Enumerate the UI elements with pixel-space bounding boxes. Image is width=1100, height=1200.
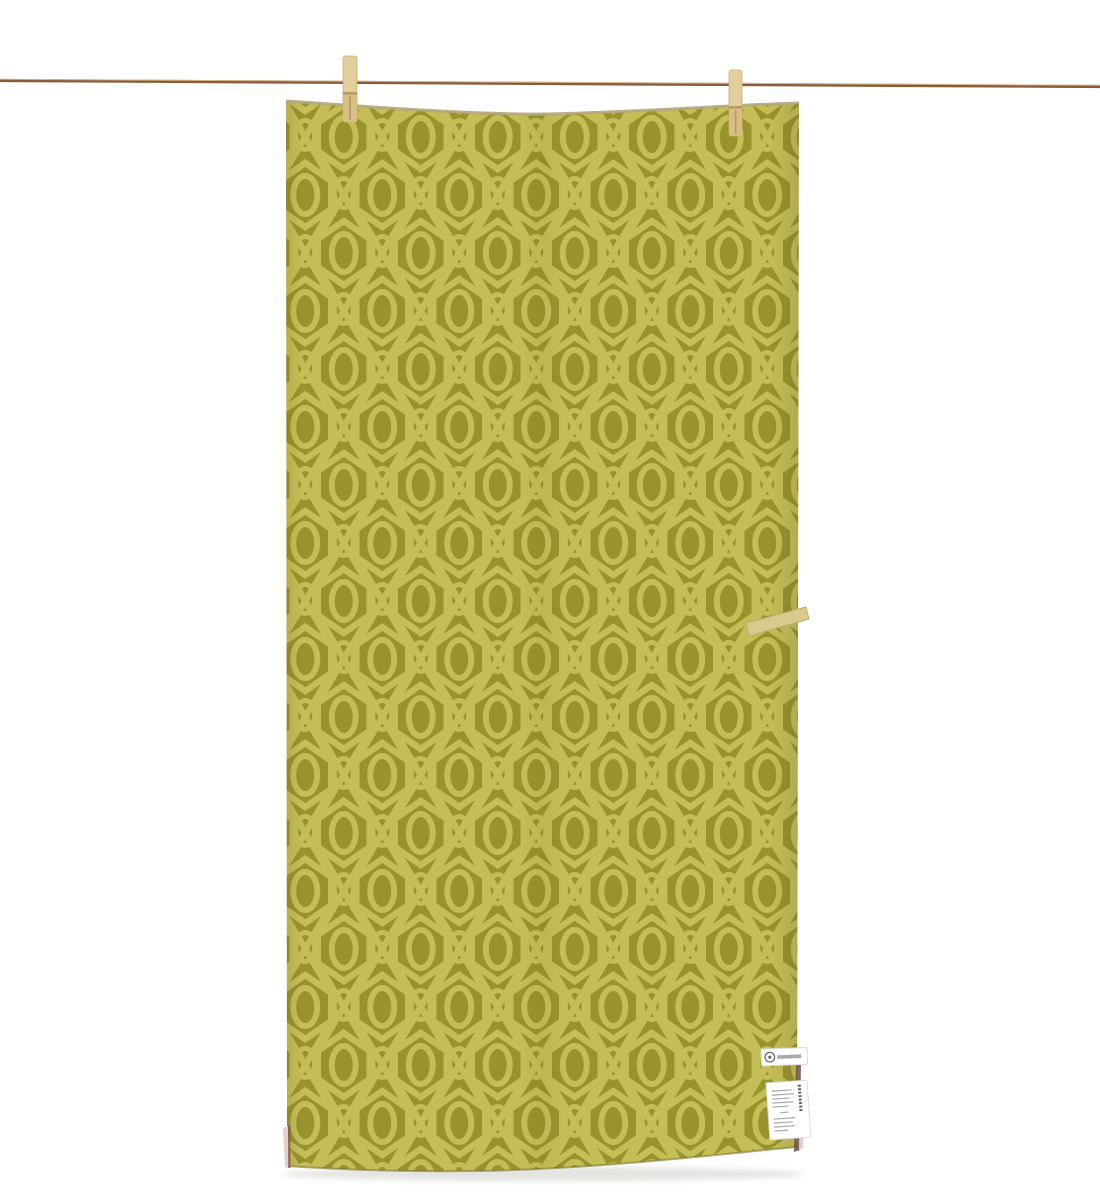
clothespin-slit: [349, 96, 351, 120]
brand-label: [761, 1047, 808, 1066]
product-photo-canvas: [0, 0, 1100, 1200]
clothespin-slit: [735, 110, 737, 134]
clothespin-right: [729, 70, 742, 136]
clothesline-rope: [0, 79, 1100, 86]
towel: [283, 101, 809, 1171]
clothespin-spring-seam: [729, 106, 742, 109]
care-label: [766, 1080, 811, 1140]
towel-crease-shading: [286, 101, 799, 1171]
photo-stage: [0, 0, 1100, 1200]
clothespin-spring-seam: [343, 92, 357, 95]
towel-edge-dark-left: [288, 1126, 291, 1168]
clothespin-left: [343, 56, 357, 122]
